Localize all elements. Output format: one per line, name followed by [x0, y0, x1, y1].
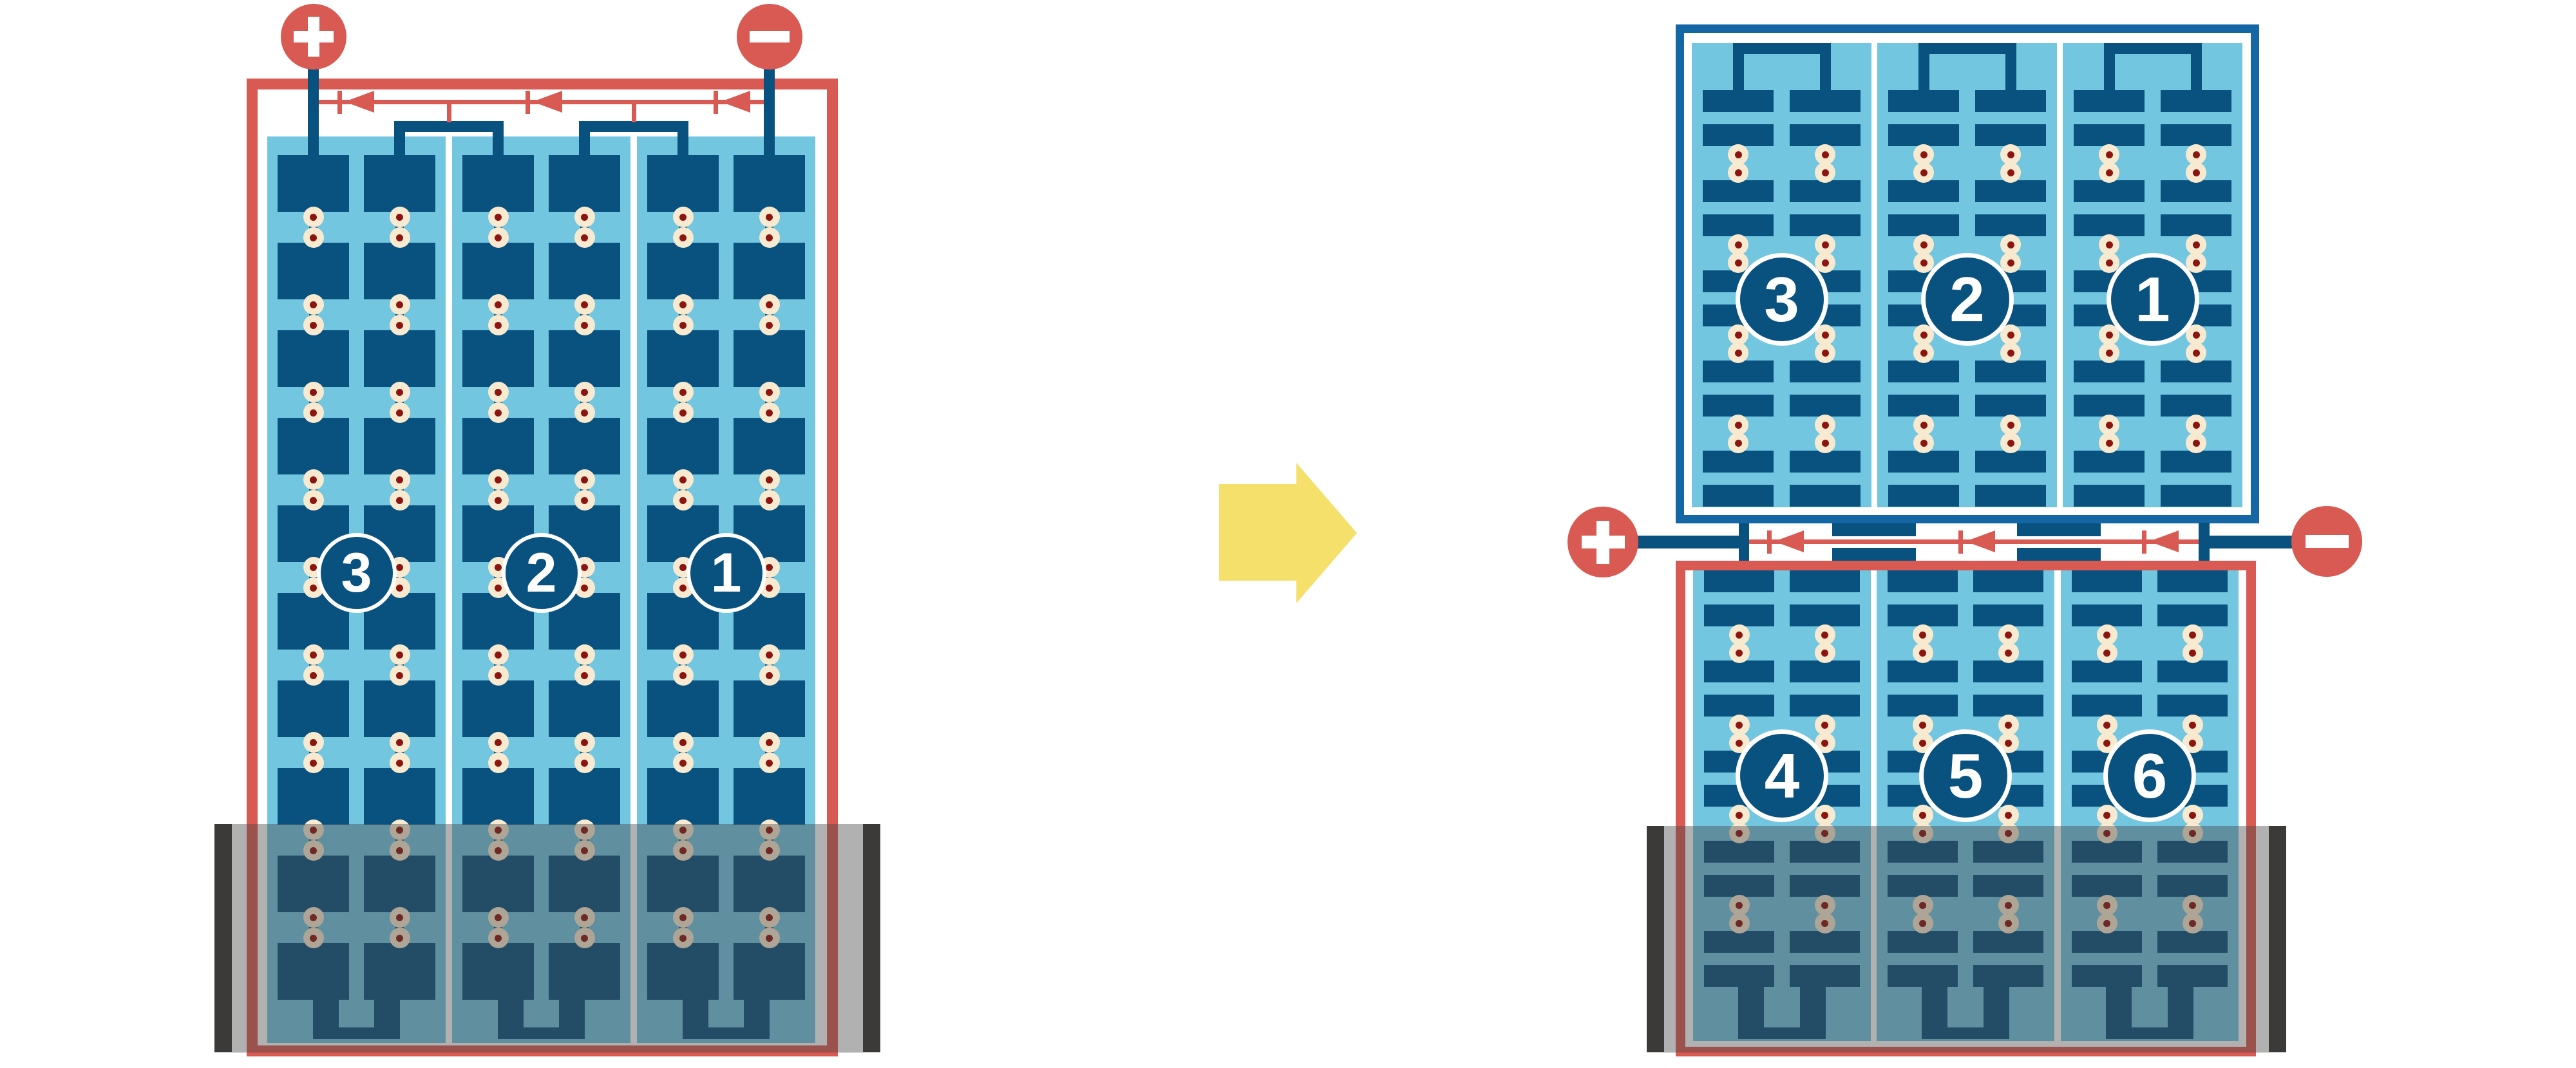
minus-icon	[2291, 506, 2362, 577]
tray-wall-right	[863, 824, 880, 1052]
positive-busbar	[1636, 536, 1749, 548]
minus-icon	[737, 4, 802, 70]
icon-bar-horizontal	[2306, 535, 2349, 548]
plus-icon	[1567, 507, 1638, 577]
connection-tab	[1832, 548, 1916, 561]
icon-bar-vertical	[308, 17, 319, 57]
tray-overlay	[214, 824, 880, 1053]
negative-terminal-post	[764, 63, 775, 164]
tray-wall-left	[214, 824, 232, 1052]
flow-arrow-head	[1774, 530, 1804, 552]
negative-terminal	[737, 4, 802, 70]
junction-post	[2199, 523, 2210, 561]
flow-arrow-head	[1965, 530, 1995, 552]
positive-terminal	[281, 4, 346, 70]
negative-terminal	[2291, 506, 2362, 577]
flow-arrow-tick	[1958, 530, 1963, 554]
terminal-layer	[0, 0, 902, 258]
battery-wiring-diagram: 321321456	[0, 0, 2576, 1068]
tray-wall-left	[1647, 826, 1664, 1052]
icon-bar-horizontal	[750, 31, 790, 42]
tray-wall-right	[2269, 826, 2286, 1052]
tray-overlay	[1647, 826, 2286, 1053]
flow-arrow-tick	[1767, 530, 1772, 554]
flow-arrow-tick	[2142, 530, 2146, 554]
connection-tab	[2017, 523, 2101, 536]
positive-terminal	[1567, 507, 1638, 577]
positive-terminal-post	[308, 63, 319, 164]
connection-tab	[2017, 548, 2101, 561]
plus-icon	[281, 4, 346, 70]
icon-bar-vertical	[1596, 521, 1609, 564]
negative-busbar	[2209, 536, 2293, 548]
flow-arrow-head	[2149, 530, 2179, 552]
connection-tab	[1832, 523, 1916, 536]
